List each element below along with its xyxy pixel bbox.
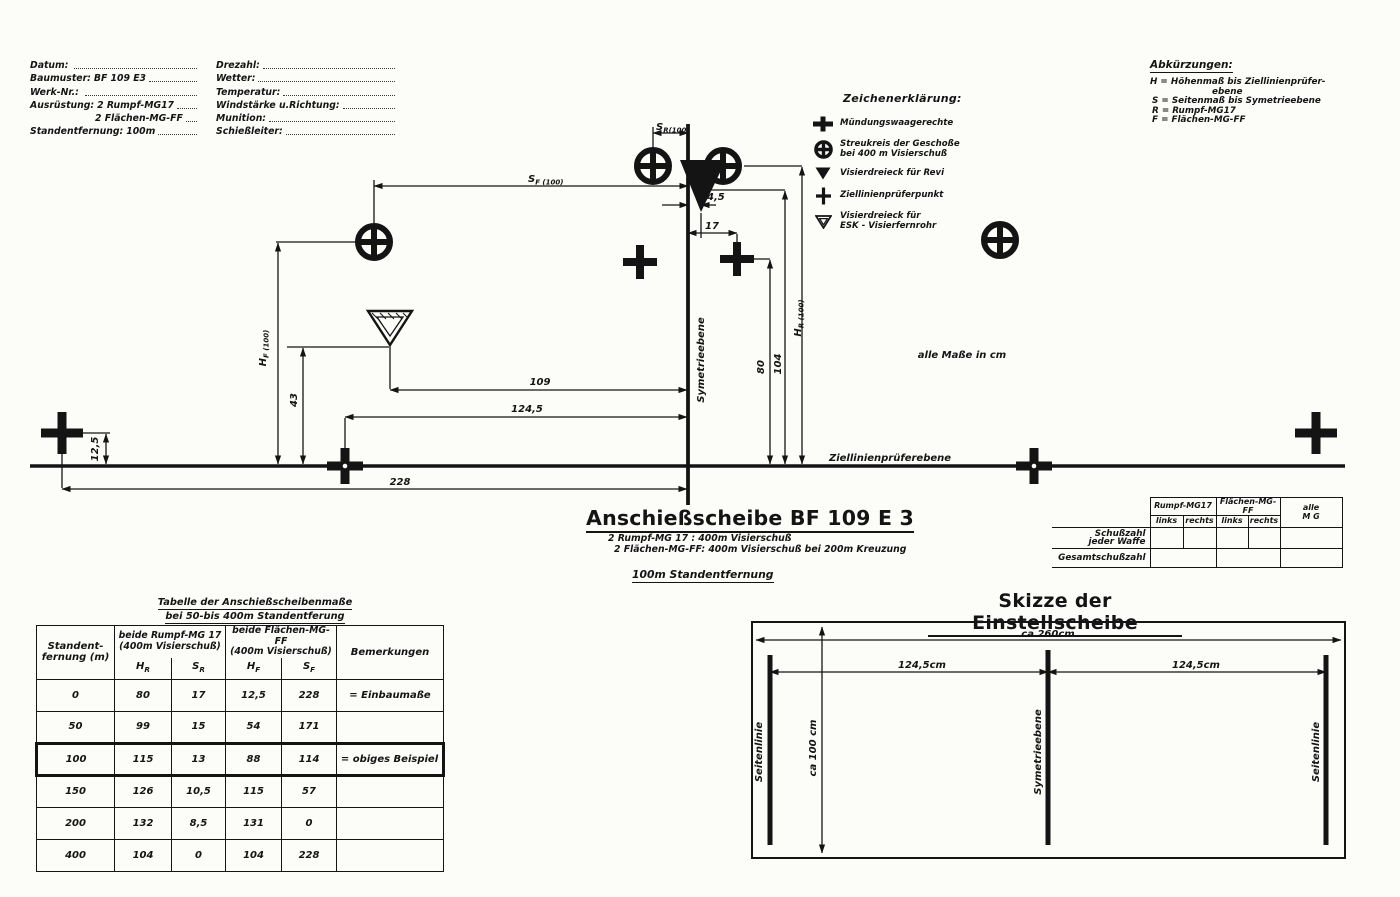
sketch-right-dim: 124,5cm (1172, 660, 1220, 671)
muzzle-cross-symbol (623, 245, 657, 279)
dim-109-label: 109 (530, 377, 551, 388)
entry-cell (1150, 549, 1216, 568)
dim-hf-label: HF (100) (258, 330, 271, 367)
empty-cell (1052, 516, 1150, 528)
revi-triangle-icon (806, 167, 840, 180)
dotted-line (149, 81, 197, 82)
dim-sf-label: SF (100) (528, 174, 563, 187)
cell-sf: 0 (282, 807, 337, 839)
cell-sf: 114 (282, 743, 337, 775)
measurements-table-title: Tabelle der Anschießscheibenmaße bei 50-… (118, 596, 392, 624)
cell-hr: 104 (115, 839, 172, 871)
legend-item: Visierdreieck für Revi (806, 167, 1106, 180)
column-label: beide Flächen-MG-FF (232, 625, 330, 647)
anschiessscheibe-sheet: SR(100) SF (100) 4,5 17 109 124,5 228 43… (0, 0, 1400, 897)
legend-item: Mündungswaagerechte (806, 116, 1106, 132)
field-label: Standentfernung: (30, 126, 123, 137)
scatter-circle-symbol (636, 149, 670, 183)
esk-triangle-icon (806, 215, 840, 229)
cell-hr: 99 (115, 711, 172, 743)
cell-hf: 12,5 (226, 679, 282, 711)
dotted-line (186, 121, 197, 122)
form-field-schiessleiter: Schießleiter: (216, 124, 396, 137)
column-label: (400m Visierschuß) (230, 646, 332, 657)
legend-title: Zeichenerklärung: (843, 92, 1106, 105)
field-label: Munition: (216, 113, 266, 124)
cell-sf: 57 (282, 775, 337, 807)
esk-triangle-symbol (368, 311, 412, 345)
column-links: links (1216, 516, 1248, 528)
table-row: 0801712,5228= Einbaumaße (37, 679, 444, 711)
column-group-flaechen: Flächen-MG-FF (1216, 498, 1280, 516)
entry-cell (1248, 528, 1280, 549)
field-label: Schießleiter: (216, 126, 283, 137)
header-form-right: Drezahl: Wetter: Temperatur: Windstärke … (216, 58, 396, 137)
dotted-line (263, 68, 395, 69)
legend-label: Mündungswaagerechte (840, 119, 953, 129)
column-rechts: rechts (1248, 516, 1280, 528)
cell-hr: 115 (115, 743, 172, 775)
form-field-wetter: Wetter: (216, 71, 396, 84)
column-group-alle: alleM G (1280, 498, 1342, 528)
table-row: 4001040104228 (37, 839, 444, 871)
field-label: Temperatur: (216, 87, 280, 98)
muzzle-cross-symbol (720, 242, 754, 276)
column-label: fernung (m) (42, 652, 110, 663)
shot-count-table: Rumpf-MG17 Flächen-MG-FF alleM G links r… (1052, 497, 1343, 568)
measurements-table: Standent-fernung (m) beide Rumpf-MG 17(4… (35, 625, 445, 872)
row-label-schusszahl: Schußzahljeder Waffe (1052, 528, 1150, 549)
scatter-circle-icon (806, 139, 840, 160)
sketch-title: Skizze der Einstellscheibe (928, 590, 1182, 637)
table-row: Schußzahljeder Waffe (1052, 528, 1342, 549)
sketch-left-dim: 124,5cm (898, 660, 946, 671)
abbreviation-line: H = Höhenmaß bis Ziellinienprüfer- (1150, 78, 1390, 88)
cell-hr: 126 (115, 775, 172, 807)
muzzle-cross-symbol (41, 412, 83, 454)
cell-sf: 228 (282, 839, 337, 871)
cell-distance: 100 (37, 743, 115, 775)
abbreviation-line: F = Flächen-MG-FF (1150, 116, 1390, 126)
cell-sf: 228 (282, 679, 337, 711)
cell-note (337, 839, 444, 871)
dotted-line (343, 108, 395, 109)
sketch-height-dim: ca 100 cm (808, 720, 819, 777)
cell-distance: 0 (37, 679, 115, 711)
dim-sr-label: SR(100) (656, 122, 690, 135)
table-title-line: Tabelle der Anschießscheibenmaße (158, 596, 352, 610)
column-label: Standent- (48, 641, 104, 652)
column-label: M G (1302, 512, 1319, 521)
sheet-title: Anschießscheibe BF 109 E 3 (586, 506, 914, 533)
dotted-line (158, 134, 197, 135)
legend-label: Visierdreieck für Revi (840, 169, 944, 179)
symbol-legend: Zeichenerklärung: Mündungswaagerechte St… (806, 92, 1106, 238)
entry-cell (1280, 528, 1342, 549)
column-label: (400m Visierschuß) (119, 641, 221, 652)
cell-sr: 10,5 (172, 775, 226, 807)
field-label: Datum: (30, 60, 68, 71)
table-title-line: bei 50-bis 400m Standentferung (165, 610, 344, 624)
entry-cell (1216, 549, 1280, 568)
entry-cell (1216, 528, 1248, 549)
cell-sf: 171 (282, 711, 337, 743)
cell-sr: 13 (172, 743, 226, 775)
column-header-sr: SR (172, 658, 226, 680)
dotted-line (286, 134, 395, 135)
form-field-temperatur: Temperatur: (216, 84, 396, 97)
table-row: 2001328,51310 (37, 807, 444, 839)
cell-hf: 88 (226, 743, 282, 775)
table-row: 15012610,511557 (37, 775, 444, 807)
cell-hr: 132 (115, 807, 172, 839)
dim-17-label: 17 (705, 221, 719, 232)
cell-sr: 15 (172, 711, 226, 743)
form-field-baumuster: Baumuster:BF 109 E3 (30, 71, 198, 84)
cell-hf: 131 (226, 807, 282, 839)
cell-note (337, 711, 444, 743)
dotted-line (258, 81, 395, 82)
cell-distance: 400 (37, 839, 115, 871)
abbreviations-block: Abkürzungen: H = Höhenmaß bis Ziellinien… (1150, 53, 1390, 126)
form-field-standentfernung: Standentfernung:100m (30, 124, 198, 137)
abbreviations-title: Abkürzungen: (1150, 59, 1233, 73)
form-field-drehzahl: Drezahl: (216, 58, 396, 71)
einstellscheibe-sketch: ca 260cm 124,5cm 124,5cm ca 100 cm Seite… (752, 622, 1345, 858)
field-label: Baumuster: (30, 73, 91, 84)
sheet-subtitle-1: 2 Rumpf-MG 17 : 400m Visierschuß (608, 533, 946, 544)
cell-sr: 0 (172, 839, 226, 871)
sheet-subtitle-2: 2 Flächen-MG-FF: 400m Visierschuß bei 20… (614, 544, 946, 555)
dim-hr-label: HR (100) (793, 299, 806, 336)
legend-label: ESK - Visierfernrohr (840, 222, 936, 232)
cell-distance: 150 (37, 775, 115, 807)
sightline-point-symbol (1016, 448, 1052, 484)
field-value: 100m (126, 126, 155, 137)
legend-item: Streukreis der Geschoßebei 400 m Visiers… (806, 139, 1106, 160)
field-label: Windstärke u.Richtung: (216, 100, 340, 111)
dotted-line (85, 95, 197, 96)
column-group-flaechen: beide Flächen-MG-FF(400m Visierschuß) (226, 626, 337, 658)
field-label: Ausrüstung: (30, 100, 94, 111)
scatter-circle-symbol (357, 225, 391, 259)
table-row: 50991554171 (37, 711, 444, 743)
dim-80-label: 80 (756, 360, 767, 374)
empty-cell (1052, 498, 1150, 516)
column-header-hf: HF (226, 658, 282, 680)
field-value: 2 Flächen-MG-FF (95, 113, 183, 124)
column-links: links (1150, 516, 1183, 528)
table-row-highlighted: 1001151388114= obiges Beispiel (37, 743, 444, 775)
title-block: Anschießscheibe BF 109 E 3 2 Rumpf-MG 17… (586, 506, 946, 583)
dim-4-5-label: 4,5 (706, 192, 725, 203)
column-group-rumpf: Rumpf-MG17 (1150, 498, 1216, 516)
legend-label: bei 400 m Visierschuß (840, 150, 960, 160)
dotted-line (269, 121, 395, 122)
entry-cell (1280, 549, 1342, 568)
sightline-point-symbol (327, 448, 363, 484)
muzzle-cross-icon (806, 116, 840, 132)
row-label: jeder Waffe (1089, 537, 1146, 547)
legend-label: Ziellinienprüferpunkt (840, 191, 943, 201)
cell-sr: 17 (172, 679, 226, 711)
column-label: beide Rumpf-MG 17 (119, 630, 222, 641)
cell-distance: 50 (37, 711, 115, 743)
cell-hf: 115 (226, 775, 282, 807)
legend-item: Ziellinienprüferpunkt (806, 187, 1106, 205)
dim-228-label: 228 (390, 477, 411, 488)
dotted-line (177, 108, 197, 109)
cell-sr: 8,5 (172, 807, 226, 839)
form-field-munition: Munition: (216, 111, 396, 124)
side-line-right-label: Seitenlinie (1311, 722, 1322, 782)
form-field-datum: Datum: (30, 58, 198, 71)
legend-item: Visierdreieck fürESK - Visierfernrohr (806, 212, 1106, 231)
symmetry-line-label: Symetrieebene (1033, 709, 1044, 795)
target-point-cross-icon (806, 187, 840, 205)
sheet-distance-note: 100m Standentfernung (632, 568, 774, 583)
column-rechts: rechts (1183, 516, 1216, 528)
field-value: 2 Rumpf-MG17 (97, 100, 174, 111)
cell-note (337, 775, 444, 807)
dim-124-5-label: 124,5 (511, 404, 543, 415)
dotted-line (74, 68, 197, 69)
dim-12-5-label: 12,5 (90, 437, 101, 462)
field-label: Werk-Nr.: (30, 87, 79, 98)
column-header-distance: Standent-fernung (m) (37, 626, 115, 680)
entry-cell (1183, 528, 1216, 549)
muzzle-cross-symbol (1295, 412, 1337, 454)
row-label-gesamtschusszahl: Gesamtschußzahl (1052, 549, 1150, 568)
cell-hf: 104 (226, 839, 282, 871)
form-field-werknr: Werk-Nr.: (30, 84, 198, 97)
units-note: alle Maße in cm (918, 350, 1006, 361)
cell-hf: 54 (226, 711, 282, 743)
dim-104-label: 104 (773, 354, 784, 375)
sightline-plane-label: Ziellinienprüferebene (828, 453, 951, 464)
cell-note: = Einbaumaße (337, 679, 444, 711)
dotted-line (283, 95, 395, 96)
dim-43-label: 43 (289, 393, 300, 408)
column-header-hr: HR (115, 658, 172, 680)
form-field-windstaerke: Windstärke u.Richtung: (216, 98, 396, 111)
column-header-sf: SF (282, 658, 337, 680)
cell-distance: 200 (37, 807, 115, 839)
column-group-rumpf: beide Rumpf-MG 17(400m Visierschuß) (115, 626, 226, 658)
field-label: Wetter: (216, 73, 255, 84)
table-row: Gesamtschußzahl (1052, 549, 1342, 568)
side-line-left-label: Seitenlinie (754, 722, 765, 782)
form-field-ausruestung-2: 2 Flächen-MG-FF (30, 111, 198, 124)
cell-note (337, 807, 444, 839)
symmetry-plane-label: Symetrieebene (696, 317, 707, 403)
field-label: Drezahl: (216, 60, 260, 71)
header-form-left: Datum: Baumuster:BF 109 E3 Werk-Nr.: Aus… (30, 58, 198, 137)
column-header-notes: Bemerkungen (337, 626, 444, 680)
form-field-ausruestung: Ausrüstung:2 Rumpf-MG17 (30, 98, 198, 111)
cell-note: = obiges Beispiel (337, 743, 444, 775)
field-value: BF 109 E3 (94, 73, 146, 84)
cell-hr: 80 (115, 679, 172, 711)
entry-cell (1150, 528, 1183, 549)
